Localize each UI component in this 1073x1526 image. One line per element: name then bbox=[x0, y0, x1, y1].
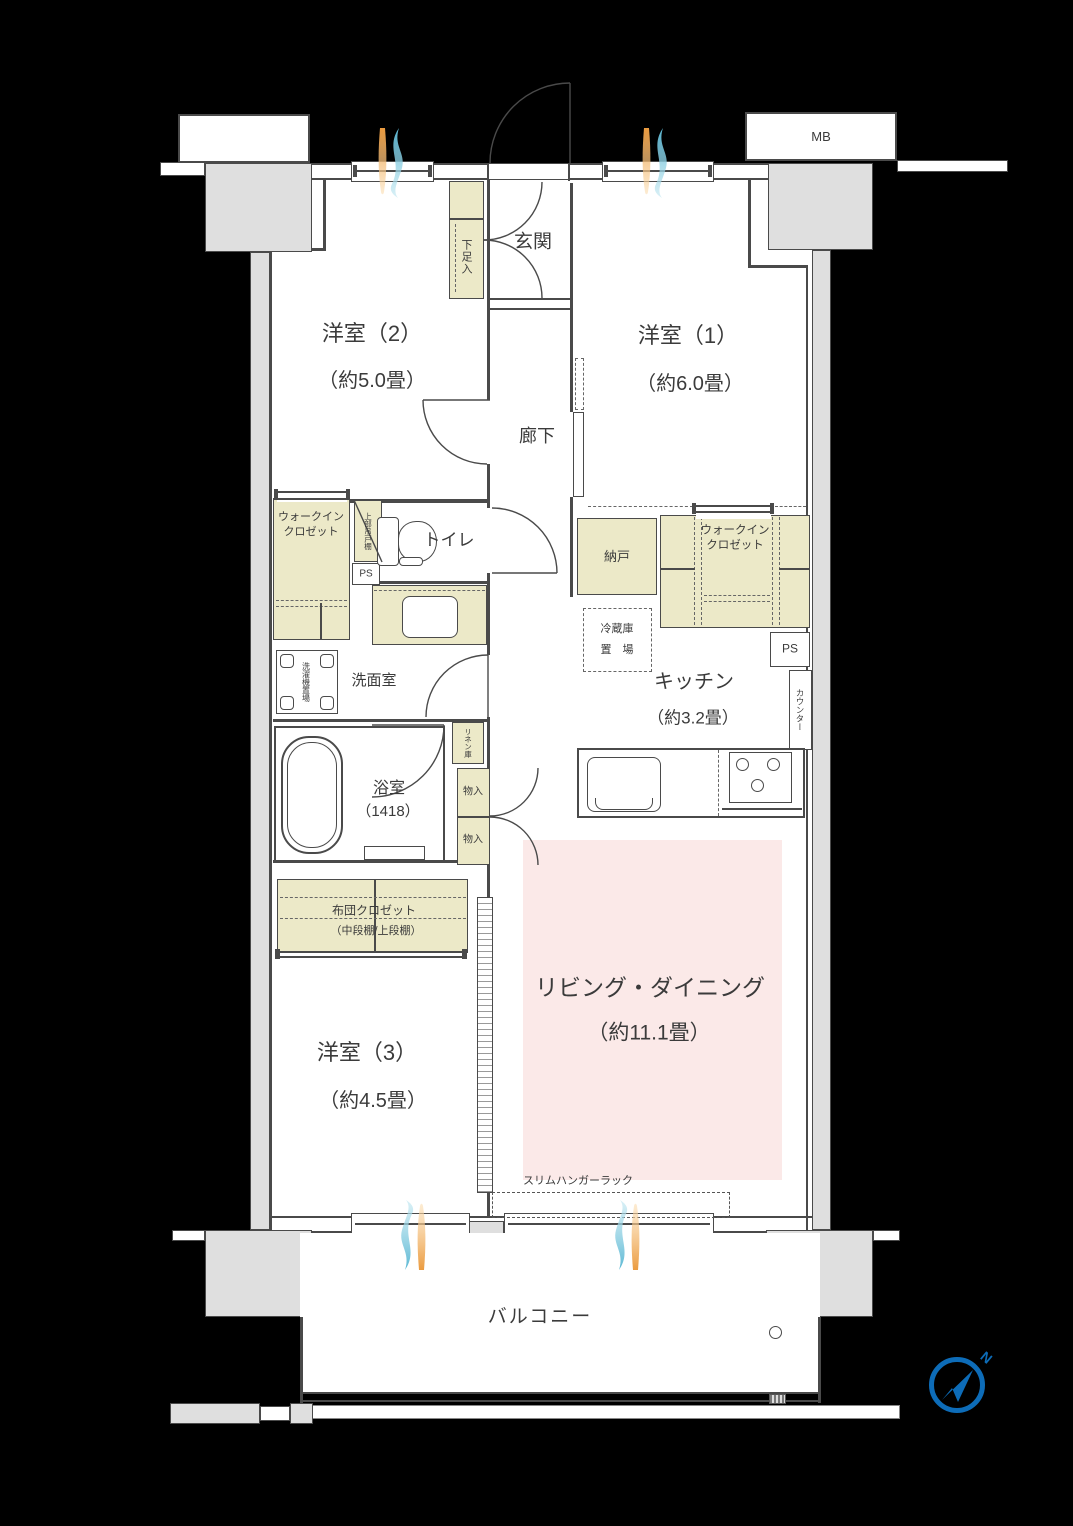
track-cap bbox=[346, 489, 350, 500]
wall-corridor-west-2 bbox=[487, 464, 490, 508]
room-label-kitchen: キッチン bbox=[654, 671, 734, 693]
futon-track bbox=[277, 956, 467, 958]
pillar-bottomleft bbox=[205, 1230, 312, 1317]
balcony-fence-outer bbox=[300, 1400, 821, 1402]
compass bbox=[929, 1357, 985, 1413]
room-label-balcony: バルコニー bbox=[488, 1308, 593, 1329]
genkan-step-1 bbox=[487, 298, 570, 300]
stove-burner bbox=[767, 758, 780, 771]
neighbor-stub-topright bbox=[897, 160, 1008, 172]
wic-left-label-1: ウォークイン bbox=[278, 511, 344, 523]
wic-right-track bbox=[695, 505, 772, 507]
wic-left-pipe bbox=[276, 606, 347, 607]
slim-hanger-rack bbox=[492, 1192, 730, 1218]
window-y1 bbox=[602, 161, 714, 182]
room-size-y2: （約5.0畳） bbox=[318, 370, 426, 392]
bath-counter bbox=[364, 846, 425, 860]
mb-label: MB bbox=[811, 130, 831, 144]
pocket-door-recess bbox=[575, 358, 584, 410]
wash-basin bbox=[402, 596, 458, 638]
room-label-ld: リビング・ダイニング bbox=[535, 975, 765, 1000]
balcony-gap-box bbox=[260, 1406, 290, 1421]
bathtub-inner bbox=[287, 742, 337, 848]
window-cap bbox=[428, 165, 432, 177]
compass-arrow-icon bbox=[934, 1362, 980, 1408]
living-dining-area bbox=[523, 840, 782, 1180]
window-cap bbox=[353, 165, 357, 177]
wic-right-pipe bbox=[772, 517, 780, 625]
shoe-closet-label: 下足入 bbox=[458, 239, 474, 275]
room-label-y2: 洋室（2） bbox=[322, 322, 422, 346]
wall-y3-south-stub bbox=[487, 1192, 490, 1216]
sliding-door-y3 bbox=[477, 897, 493, 1193]
mono-label-1: 物入 bbox=[463, 787, 483, 798]
room-label-toilet: トイレ bbox=[424, 532, 475, 551]
track-cap bbox=[770, 503, 774, 514]
wall-strip-right bbox=[812, 250, 831, 1230]
wic-left-pipe bbox=[276, 600, 347, 601]
stove-burner bbox=[751, 779, 764, 792]
fridge-label-2: 置 場 bbox=[601, 644, 634, 656]
pocket-door-panel bbox=[573, 412, 584, 497]
room-size-y3: （約4.5畳） bbox=[319, 1090, 427, 1112]
kitchen-divider bbox=[718, 750, 720, 816]
pillar-topright bbox=[768, 163, 873, 250]
entrance-jamb-right bbox=[568, 163, 570, 181]
wic-left-track bbox=[276, 498, 348, 500]
window-cap bbox=[708, 165, 712, 177]
wall-left-inner bbox=[270, 178, 272, 1233]
entrance-jamb-left bbox=[487, 163, 489, 181]
wic-right-shelf bbox=[661, 568, 695, 570]
neighbor-stub-bottomright bbox=[873, 1230, 900, 1241]
room-label-senmen: 洗面室 bbox=[351, 673, 396, 690]
futon-shelf-dashed bbox=[280, 918, 466, 919]
window-y2 bbox=[351, 161, 434, 182]
room-size-ld: （約11.1畳） bbox=[587, 1021, 710, 1044]
ps-label-left: PS bbox=[359, 569, 372, 580]
hanger-rack-label: スリムハンガーラック bbox=[523, 1175, 633, 1187]
futon-shelf-dashed bbox=[280, 897, 466, 898]
wic-right-shelf bbox=[779, 568, 809, 570]
track-cap bbox=[692, 503, 696, 514]
wic-right-label-1: ウォークイン bbox=[701, 525, 770, 538]
wic-right-track bbox=[695, 511, 772, 513]
entrance-opening bbox=[489, 164, 568, 179]
upper-cabinet-label: 上部吊戸棚 bbox=[363, 512, 374, 550]
fridge-label-1: 冷蔵庫 bbox=[601, 623, 634, 635]
shoe-closet-shelf bbox=[450, 218, 483, 220]
balcony-footing bbox=[305, 1405, 900, 1419]
balcony-wall-left bbox=[300, 1317, 303, 1403]
pillar-topleft bbox=[205, 163, 312, 252]
stove-burner bbox=[736, 758, 749, 771]
washer-pad bbox=[320, 696, 334, 710]
notch-left-v bbox=[323, 180, 326, 251]
neighbor-stub-bottomleft bbox=[172, 1230, 205, 1241]
balcony-drain-grate bbox=[769, 1394, 786, 1404]
washer-pad bbox=[280, 654, 294, 668]
window-y1-sash bbox=[606, 170, 710, 172]
notch-right-v bbox=[748, 180, 751, 268]
room-size-y1: （約6.0畳） bbox=[636, 373, 744, 395]
washer-label: 洗濯機置場 bbox=[301, 662, 312, 702]
wic-right-dashed bbox=[704, 595, 770, 596]
balcony-partition-left bbox=[170, 1403, 260, 1424]
track-cap bbox=[462, 949, 467, 959]
wall-corridor-east-1 bbox=[570, 183, 573, 412]
outdoor-box-topleft bbox=[178, 114, 310, 163]
futon-label-2: （中段棚/上段棚） bbox=[330, 925, 421, 937]
window-cap bbox=[604, 165, 608, 177]
wic-right-opening bbox=[696, 512, 771, 519]
ps-label-right: PS bbox=[782, 642, 798, 655]
room-label-y1: 洋室（1） bbox=[638, 324, 738, 348]
vanity-dashed bbox=[374, 590, 485, 591]
wic-left-divider bbox=[320, 603, 322, 639]
futon-track bbox=[277, 951, 467, 953]
room-size-bath: （1418） bbox=[356, 804, 419, 821]
mono-label-2: 物入 bbox=[463, 835, 483, 846]
stove-front-edge bbox=[722, 808, 802, 810]
balcony-fence-inner bbox=[300, 1392, 821, 1394]
room-label-rouka: 廊下 bbox=[519, 427, 555, 447]
balcony-partition-left2 bbox=[290, 1403, 313, 1424]
window-y3-sash bbox=[355, 1223, 466, 1225]
wic-right-dashed bbox=[704, 601, 770, 602]
linen-label: リネン庫 bbox=[463, 728, 474, 758]
neighbor-stub-topleft bbox=[160, 162, 205, 176]
balcony-wall-right bbox=[818, 1317, 821, 1403]
washer-pad bbox=[280, 696, 294, 710]
window-y2-sash bbox=[355, 170, 430, 172]
soffit-dashed-2 bbox=[775, 506, 806, 507]
track-cap bbox=[275, 949, 280, 959]
wic-left-label-2: クロゼット bbox=[284, 526, 339, 538]
wall-corridor-west-3 bbox=[487, 573, 490, 655]
room-label-genkan: 玄関 bbox=[514, 233, 552, 254]
floor-plan: 洋室（2） （約5.0畳） 洋室（1） （約6.0畳） 玄関 廊下 トイレ 納戸… bbox=[0, 0, 1073, 1526]
balcony-drain bbox=[769, 1326, 782, 1339]
wall-corridor-east-2 bbox=[570, 497, 573, 597]
wic-right-label-2: クロゼット bbox=[706, 540, 764, 553]
wall-corridor-west-1 bbox=[487, 180, 490, 400]
notch-right-h bbox=[748, 265, 808, 268]
wic-left-track bbox=[276, 491, 348, 493]
shoe-closet-rail bbox=[455, 224, 457, 292]
room-label-bath: 浴室 bbox=[373, 780, 405, 798]
room-label-y3: 洋室（3） bbox=[317, 1041, 417, 1065]
soffit-dashed-1 bbox=[588, 506, 693, 507]
toilet-tank bbox=[377, 517, 399, 566]
counter-label: カウンター bbox=[794, 689, 806, 732]
kitchen-sink-lip bbox=[595, 798, 653, 810]
room-size-kitchen: （約3.2畳） bbox=[647, 710, 739, 729]
toilet-handle bbox=[399, 557, 423, 566]
genkan-step-2 bbox=[487, 308, 570, 310]
washer-pad bbox=[320, 654, 334, 668]
futon-label-1: 布団クロゼット bbox=[332, 904, 416, 917]
window-ld-sash bbox=[508, 1223, 710, 1225]
fridge-space bbox=[583, 608, 652, 672]
room-label-nando: 納戸 bbox=[604, 550, 630, 564]
wall-strip-left bbox=[250, 252, 270, 1230]
track-cap bbox=[274, 489, 278, 500]
